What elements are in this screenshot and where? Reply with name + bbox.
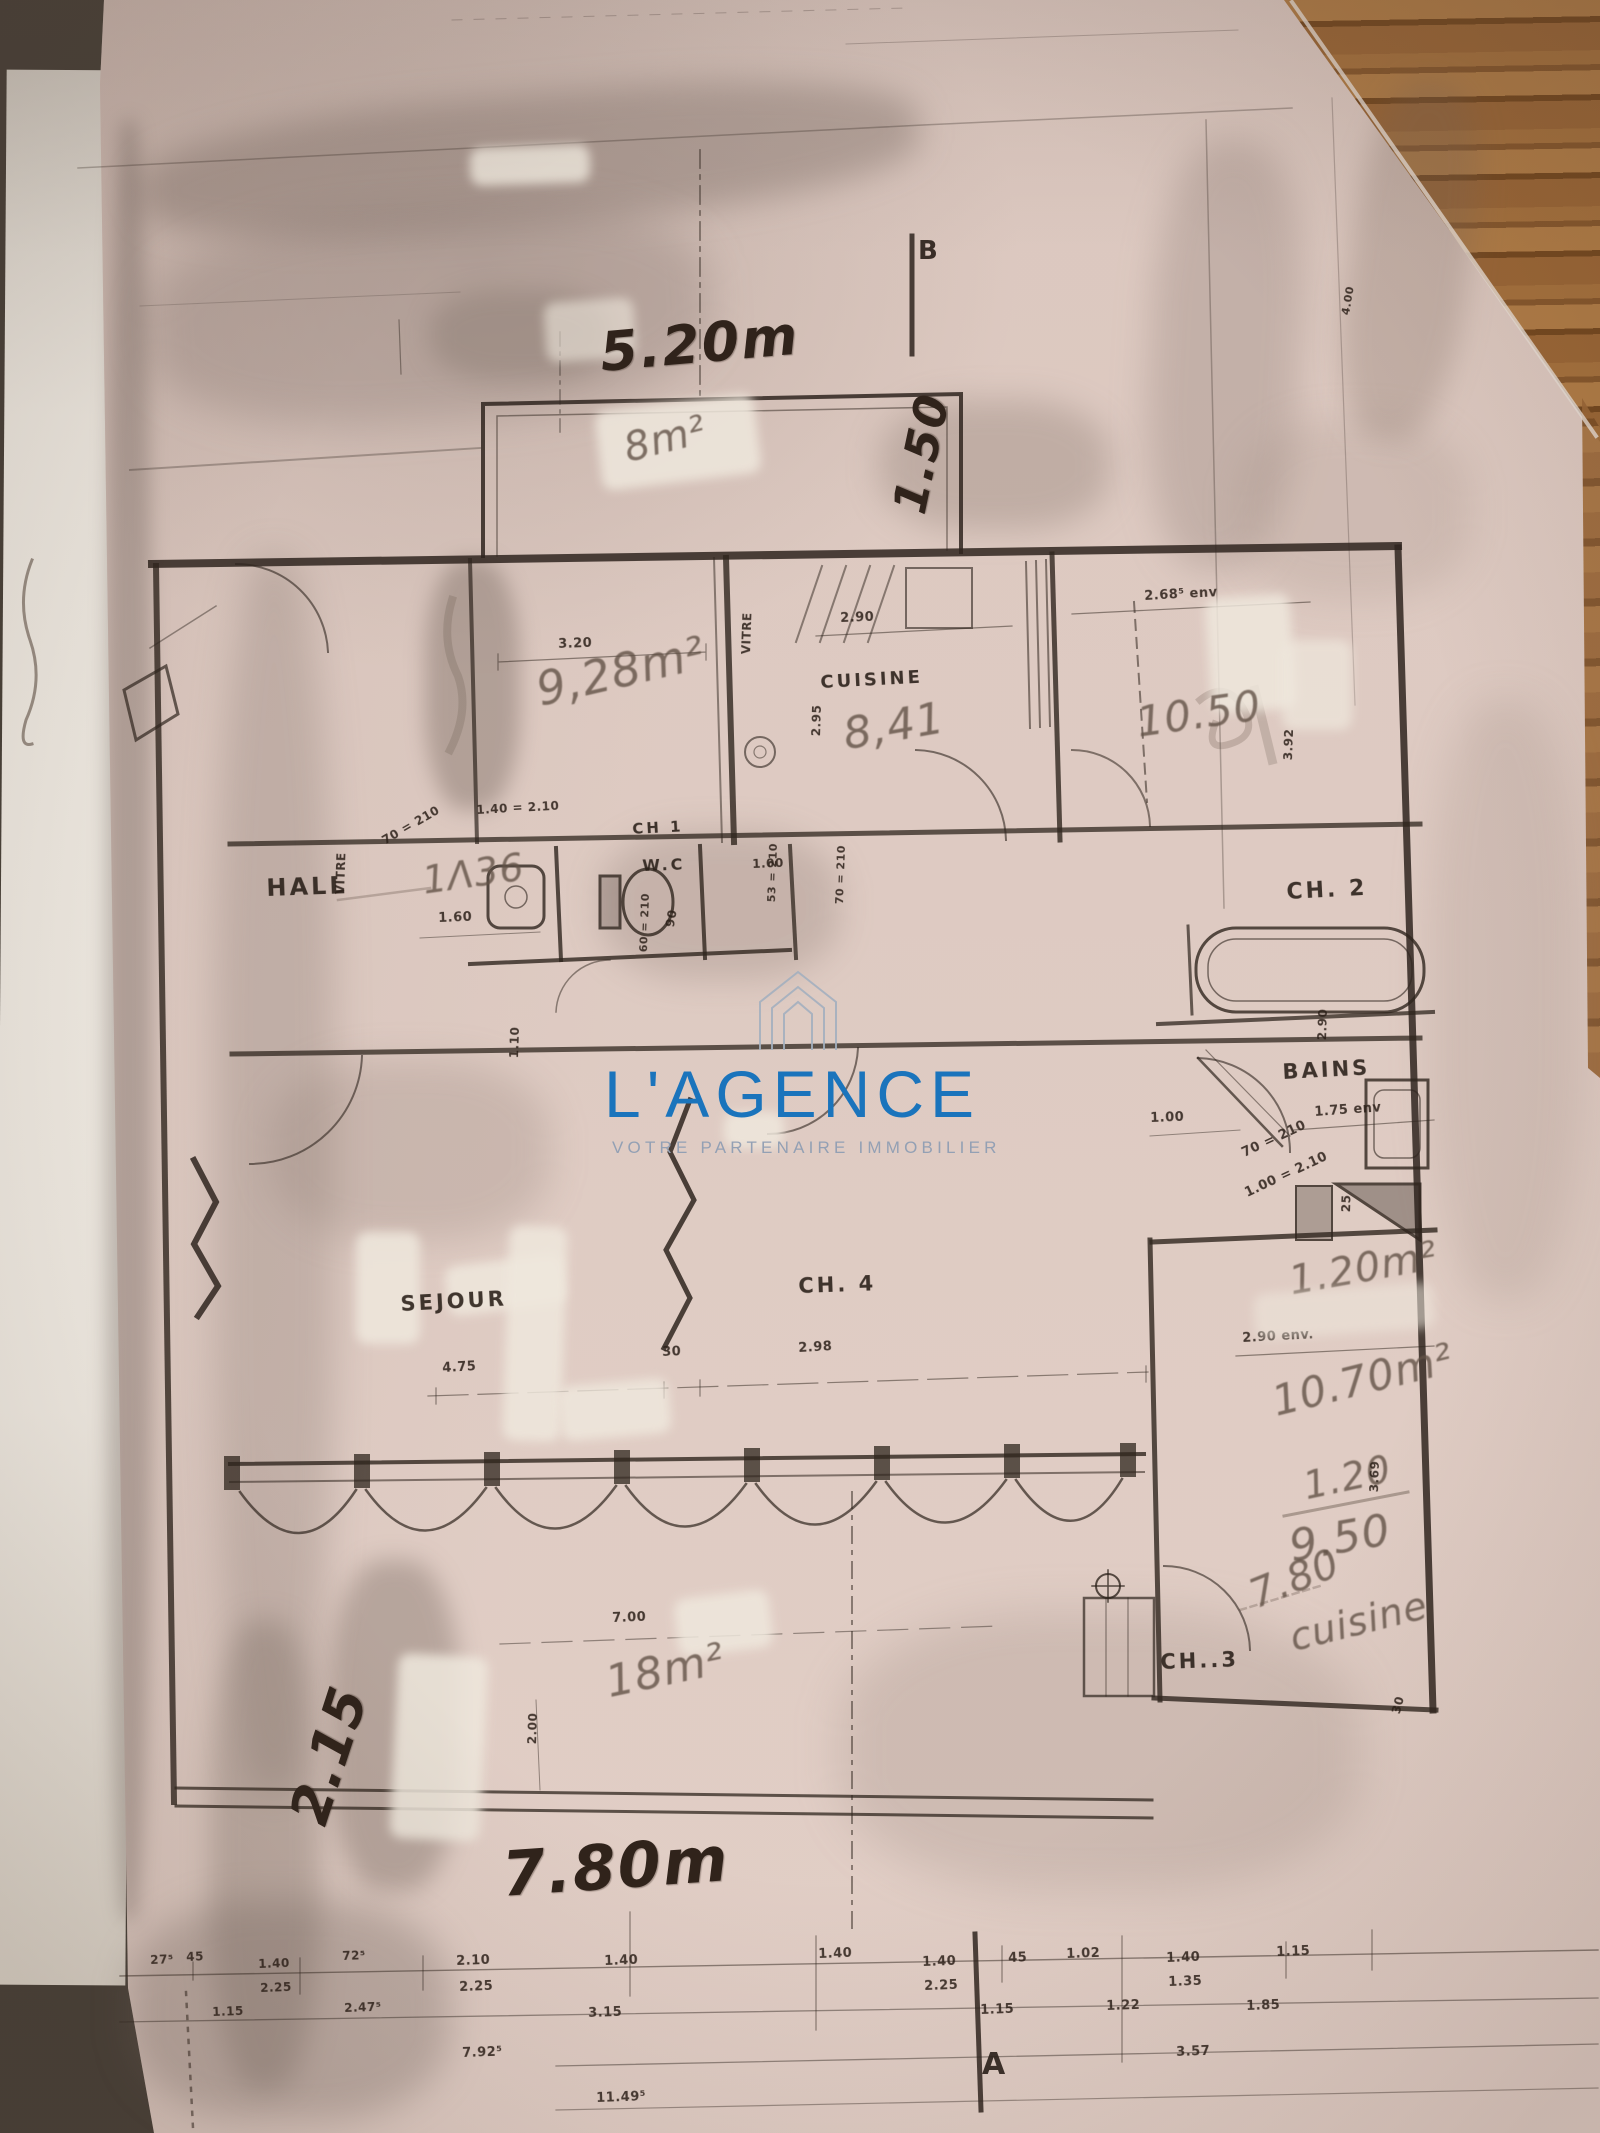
arcade-columns bbox=[224, 1443, 1136, 1490]
bathtub-shape bbox=[1196, 928, 1424, 1012]
door-arc bbox=[1072, 750, 1150, 826]
balcony-wall bbox=[483, 394, 961, 556]
toilet-shape bbox=[623, 869, 673, 935]
pencil-zigzag bbox=[194, 1160, 218, 1316]
door-arc bbox=[1164, 1566, 1250, 1650]
arcade-arches bbox=[240, 1479, 1122, 1533]
door-arc bbox=[916, 750, 1006, 840]
sink-shape bbox=[488, 866, 544, 928]
door-arc bbox=[768, 1048, 858, 1134]
door-arc bbox=[250, 1056, 362, 1164]
outer-wall-left bbox=[156, 566, 174, 1802]
door-arc bbox=[236, 564, 328, 652]
outer-wall-top bbox=[152, 546, 1398, 564]
break-line bbox=[664, 1100, 694, 1348]
entry-porch-shape bbox=[124, 666, 178, 740]
floor-plan-linework bbox=[0, 0, 1600, 2133]
duct-shape bbox=[1084, 1598, 1154, 1696]
door-arc bbox=[556, 960, 610, 1012]
outer-wall-bottom bbox=[176, 1806, 1152, 1818]
floor-plan-photo: 5.20m1.502.157.80m8m²9,28m²8,4110.501Λ36… bbox=[0, 0, 1600, 2133]
